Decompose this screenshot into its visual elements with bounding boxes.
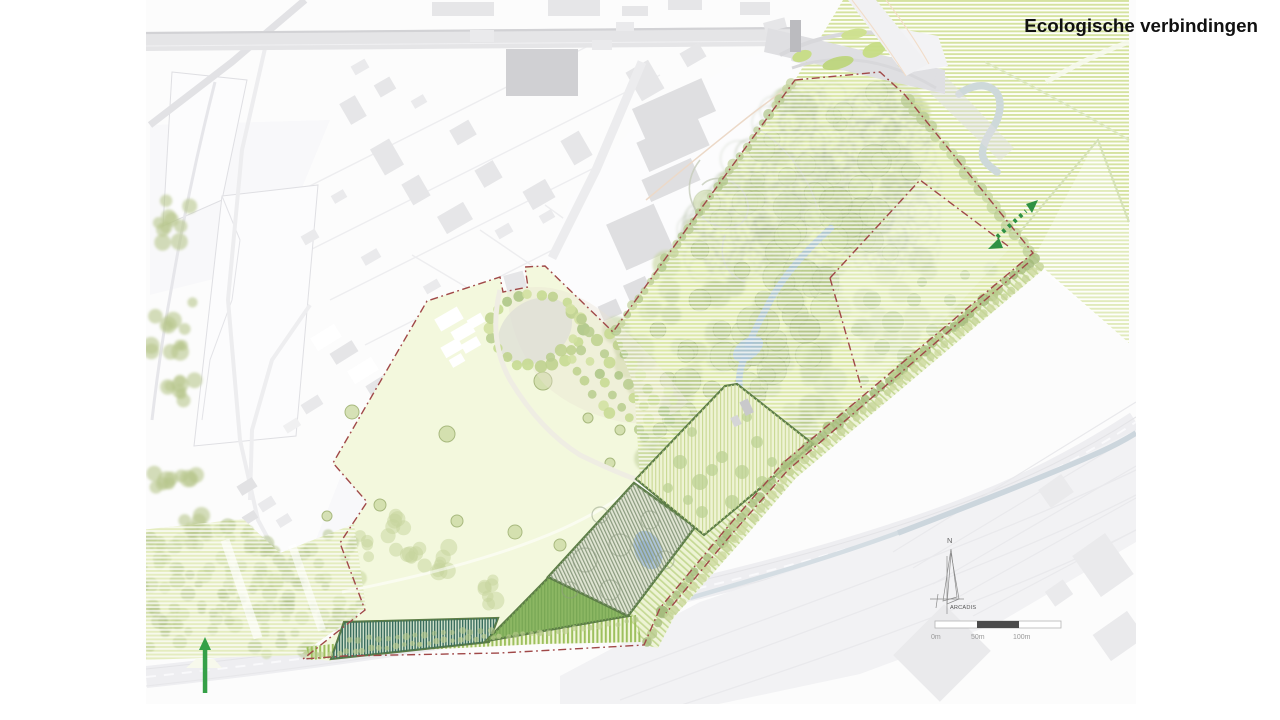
svg-text:N: N — [947, 536, 952, 545]
svg-text:0m: 0m — [931, 634, 941, 641]
svg-text:Ecologische verbindingen: Ecologische verbindingen — [1024, 15, 1258, 36]
svg-text:50m: 50m — [971, 634, 985, 641]
svg-text:ARCADIS: ARCADIS — [950, 605, 976, 611]
svg-text:100m: 100m — [1013, 634, 1031, 641]
